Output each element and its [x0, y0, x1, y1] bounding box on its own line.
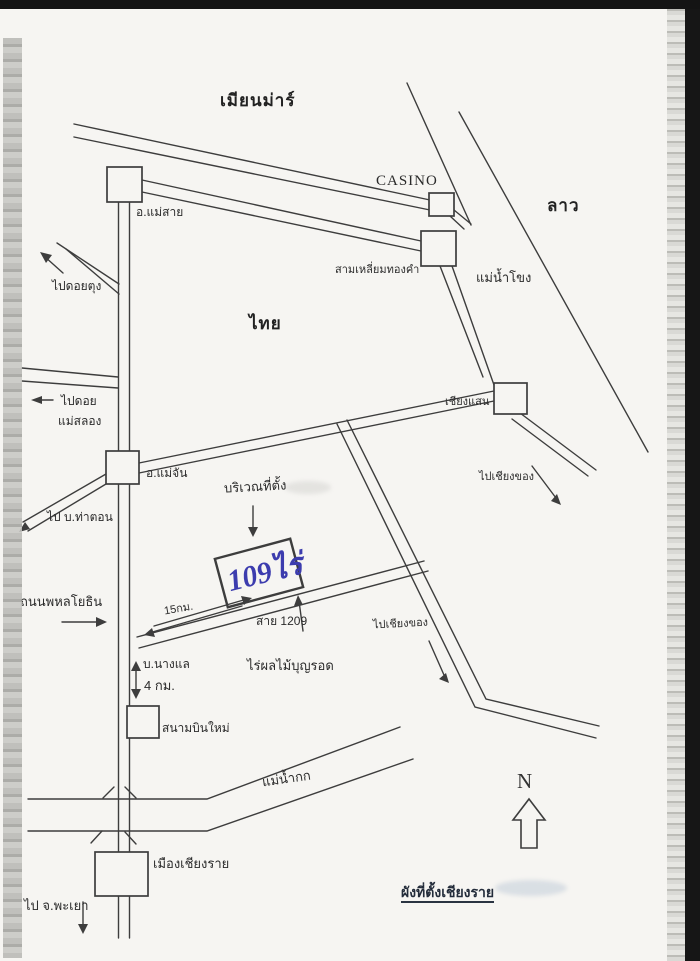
label-to-mae-salong-1: ไปดอย	[61, 395, 97, 408]
box-chiang-saen	[494, 383, 527, 414]
label-chiang-rai-city: เมืองเชียงราย	[153, 857, 229, 871]
arrow-line	[429, 641, 444, 675]
label-mae-sai: อ.แม่สาย	[136, 206, 183, 219]
box-new-airport	[127, 706, 159, 738]
tick	[103, 787, 114, 798]
label-4km: 4 กม.	[144, 679, 175, 693]
label-boonrod-farm: ไร่ผลไม้บุญรอด	[247, 659, 334, 673]
tick	[125, 832, 136, 844]
label-compass-north: N	[517, 770, 532, 793]
label-new-airport: สนามบินใหม่	[162, 722, 230, 735]
road-line	[520, 413, 596, 470]
arrowhead	[96, 617, 107, 627]
river-line	[28, 759, 413, 831]
road-line	[512, 419, 588, 476]
road-line	[139, 401, 494, 473]
arrowhead	[248, 527, 258, 537]
road-line	[347, 420, 599, 726]
road-chiang-saen-southeast	[512, 413, 596, 476]
label-chiang-saen: เชียงแสน	[445, 396, 489, 408]
arrowhead	[144, 628, 155, 637]
river-line	[28, 727, 400, 799]
map-drawing	[0, 0, 700, 961]
road-chiang-saen-mae-chan	[139, 391, 494, 473]
road-branch-chiang-khong	[337, 420, 599, 738]
arrow-site-pointer	[248, 506, 258, 537]
label-to-chiang-khong-upper: ไปเชียงของ	[479, 471, 534, 483]
label-mae-chan: อ.แม่จัน	[146, 467, 187, 480]
compass-north-arrow	[513, 799, 545, 848]
scanned-map-page: เมียนม่าร์ CASINO ลาว อ.แม่สาย สามเหลี่ย…	[0, 0, 700, 961]
scan-smudge	[285, 481, 331, 494]
road-line	[450, 216, 464, 229]
label-river-mekong: แม่น้ำโขง	[476, 271, 531, 285]
label-to-doi-tung: ไปดอยตุง	[52, 280, 101, 293]
arrow-line	[532, 466, 556, 498]
label-country-thailand: ไทย	[249, 315, 282, 334]
scan-right-paper-edge	[667, 9, 685, 961]
road-line	[142, 192, 421, 251]
road-line	[139, 391, 494, 463]
road-mae-sai-golden-triangle	[142, 180, 421, 251]
river-kok	[28, 727, 413, 831]
road-line	[22, 381, 118, 388]
map-title: ผังที่ตั้งเชียงราย	[401, 885, 494, 903]
arrowhead	[551, 494, 561, 505]
label-to-phayao: ไป จ.พะเยา	[24, 899, 89, 913]
label-golden-triangle: สามเหลี่ยมทองคำ	[335, 264, 419, 276]
label-route-1209: สาย 1209	[256, 615, 307, 628]
road-line	[337, 424, 596, 738]
label-country-myanmar: เมียนม่าร์	[220, 92, 295, 111]
label-phahonyothin-road: ถนนพหลโยธิน	[20, 595, 102, 609]
box-mae-chan	[106, 451, 139, 484]
arrowhead	[31, 396, 42, 404]
label-country-laos: ลาว	[547, 197, 580, 216]
scan-left-edge-strip	[3, 38, 22, 958]
label-to-mae-salong-2: แม่สลอง	[58, 415, 101, 428]
road-line	[22, 368, 118, 377]
road-phahonyothin-vertical	[119, 200, 130, 938]
arrow-chiang-khong-upper	[532, 466, 561, 505]
arrowhead	[294, 595, 303, 606]
box-mae-sai	[107, 167, 142, 202]
box-chiang-rai-city	[95, 852, 148, 896]
arrowhead	[131, 661, 141, 671]
arrow-4km-double	[131, 661, 141, 699]
arrow-phahonyothin	[62, 617, 107, 627]
scan-smudge	[495, 880, 567, 896]
label-to-tha-ton: ไป บ.ท่าตอน	[47, 511, 113, 524]
scan-right-black-strip	[685, 9, 700, 961]
tick	[125, 787, 136, 798]
arrow-line	[149, 606, 242, 633]
scan-top-bar	[0, 0, 700, 9]
box-golden-triangle	[421, 231, 456, 266]
tick	[91, 831, 102, 843]
arrowhead	[78, 924, 88, 934]
label-ban-nang-lae: บ.นางแล	[143, 658, 190, 671]
box-casino	[429, 193, 454, 216]
arrowhead	[131, 689, 141, 699]
label-casino: CASINO	[376, 173, 438, 190]
